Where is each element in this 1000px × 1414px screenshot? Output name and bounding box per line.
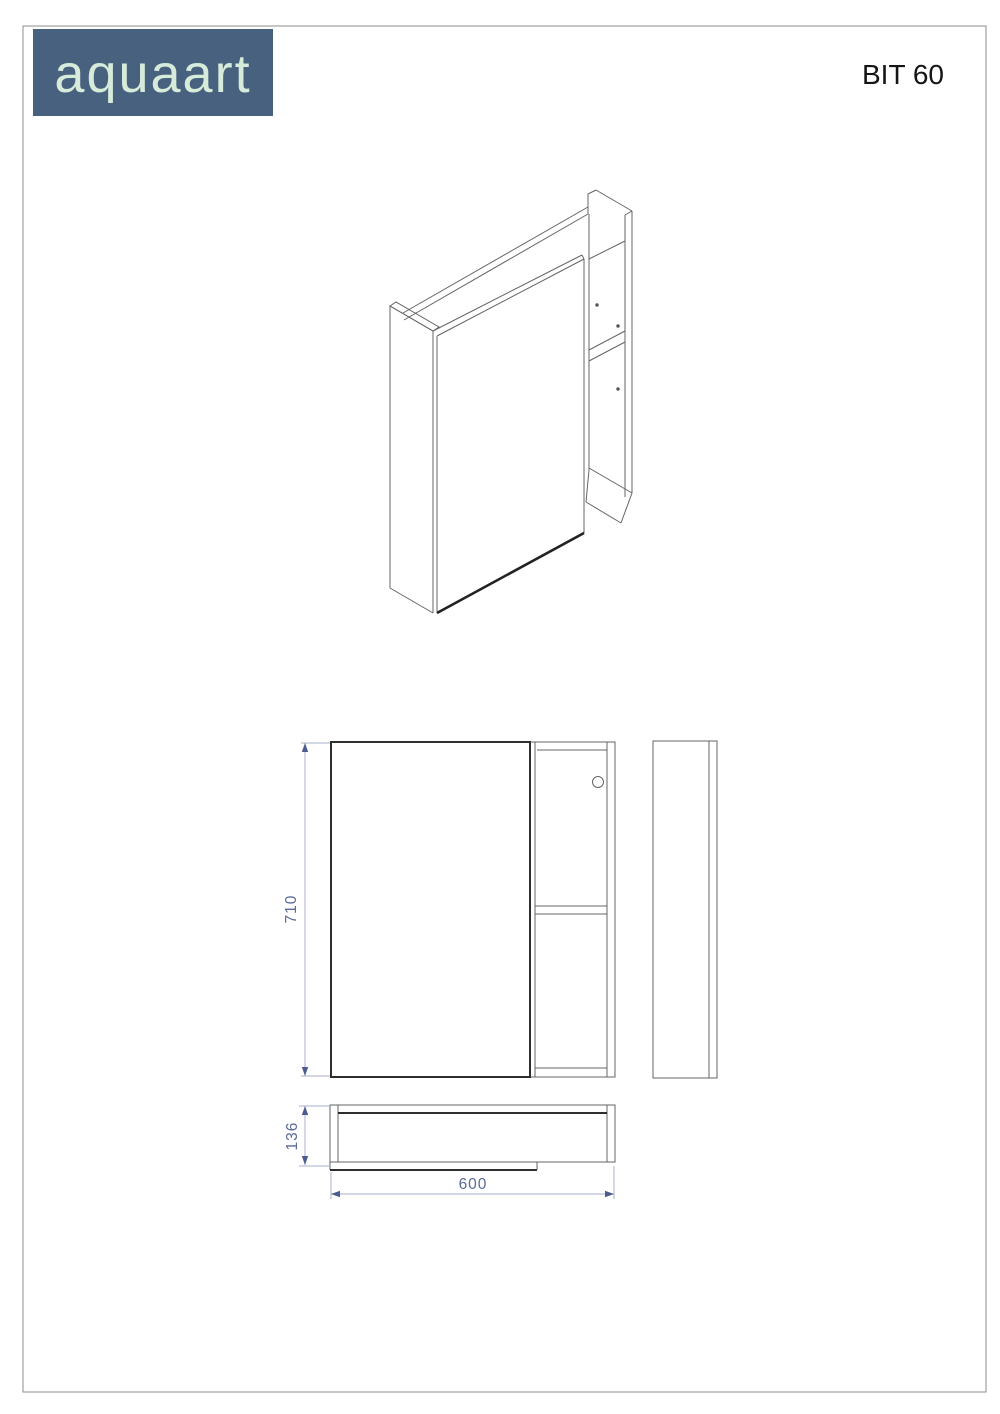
depth-dimension-value: 136 bbox=[284, 1122, 301, 1151]
iso-open-shelves bbox=[586, 214, 625, 523]
mount-hole-marker bbox=[595, 303, 598, 306]
brand-logo: aquaart bbox=[33, 29, 273, 116]
height-dimension-value: 710 bbox=[283, 895, 300, 924]
height-dimension: 710 bbox=[283, 743, 330, 1076]
model-title: BIT 60 bbox=[862, 59, 944, 90]
isometric-view bbox=[390, 190, 632, 613]
spec-sheet-page: aquaart BIT 60 bbox=[0, 0, 1000, 1414]
front-mirror-door bbox=[331, 742, 530, 1077]
front-hole bbox=[593, 777, 604, 788]
iso-mirror-door bbox=[433, 255, 584, 613]
side-view bbox=[653, 741, 717, 1078]
width-dimension-value: 600 bbox=[459, 1176, 488, 1193]
depth-dimension: 136 bbox=[284, 1106, 331, 1166]
bottom-view bbox=[330, 1105, 615, 1170]
front-view bbox=[331, 742, 615, 1077]
side-outline bbox=[653, 741, 717, 1078]
mount-hole-marker bbox=[616, 324, 619, 327]
front-carcass-outline bbox=[331, 742, 615, 1077]
page-border bbox=[23, 26, 986, 1392]
mount-hole-marker bbox=[616, 387, 619, 390]
logo-text: aquaart bbox=[54, 44, 251, 104]
